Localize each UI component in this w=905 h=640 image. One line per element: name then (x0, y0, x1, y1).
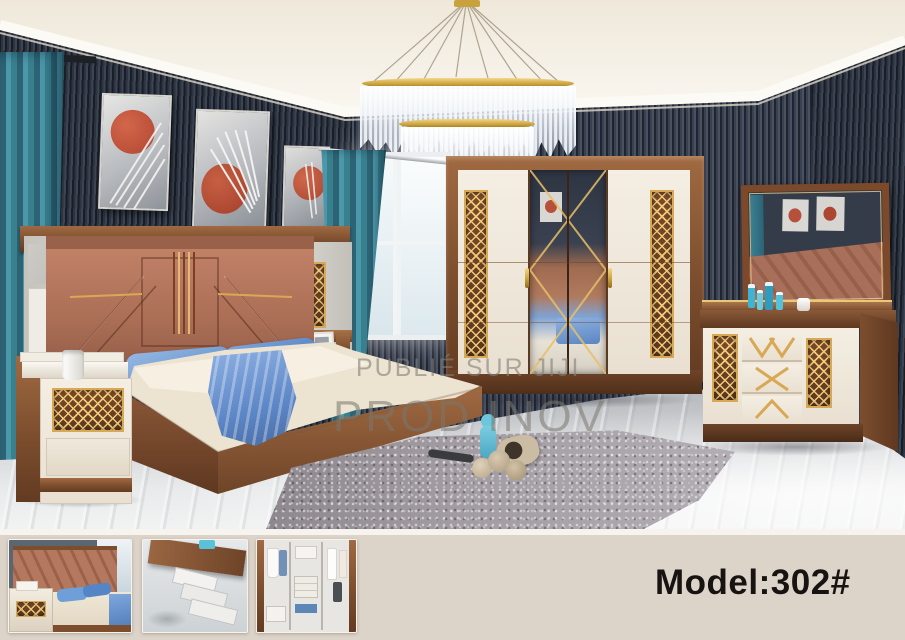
nightstand-lower-drawer (46, 438, 130, 476)
nightstand-base (40, 478, 132, 492)
wardrobe-handle-left (525, 268, 529, 288)
wardrobe-door-seam (458, 322, 690, 323)
model-label: Model:302# (655, 563, 851, 603)
thumb-divider (321, 542, 323, 630)
thumb-nightstand (9, 588, 53, 632)
wall-art-1 (98, 93, 172, 211)
thumbnail-dresser-open-drawers (142, 539, 248, 633)
nightstand-lattice-drawer (52, 388, 124, 432)
thumb-wardrobe-frame-right (349, 540, 356, 632)
flower (506, 460, 526, 480)
thumb-pillow (82, 582, 111, 598)
thumb-floor-shadow (147, 610, 187, 628)
thumb-bottles (199, 540, 215, 549)
dresser-lattice-left (712, 334, 738, 402)
wardrobe-mirror-gold-trim (530, 170, 606, 374)
art-fan-lines (100, 95, 174, 213)
thumb-bed (53, 592, 131, 632)
wardrobe-lattice-left (464, 190, 488, 358)
product-photo-card: PUBLIÉ SUR JIJI PROD INOV (0, 0, 905, 640)
dried-flowers (472, 450, 528, 484)
wardrobe-mirror-doors (530, 170, 606, 374)
wardrobe-door-right (606, 170, 690, 374)
thumbnail-bed-closeup (8, 539, 132, 633)
dresser-side-panel (860, 310, 898, 452)
watermark-line2: PROD INOV (333, 392, 607, 442)
dresser-drawer-middle (742, 364, 802, 394)
thumb-tissue-box (16, 581, 38, 591)
dresser-lattice-right (806, 338, 832, 408)
showroom-photo: PUBLIÉ SUR JIJI PROD INOV (0, 0, 905, 532)
thumb-shelf-box (295, 546, 317, 559)
thumb-divider (289, 542, 291, 630)
watermark-line1: PUBLIÉ SUR JIJI (356, 354, 581, 383)
thumbnail-wardrobe-interior (256, 539, 357, 633)
dresser-drawer-bottom (742, 396, 802, 422)
perfume-bottle (776, 292, 783, 310)
thumb-hanging-clothes (327, 548, 337, 580)
footer-strip: Model:302# (0, 535, 905, 640)
dresser (696, 178, 905, 480)
thumb-dresser-top (148, 539, 247, 577)
thumb-hanging-clothes (279, 550, 287, 576)
nightstand (16, 350, 136, 502)
thumb-inner-drawers (294, 576, 318, 598)
thumb-wardrobe-frame-left (257, 540, 264, 632)
wardrobe-door-seam (458, 262, 690, 263)
dresser-mirror (741, 183, 891, 310)
perfume-bottle (757, 290, 763, 310)
thumb-hanging-clothes (267, 548, 279, 578)
perfume-bottle (748, 284, 755, 308)
wardrobe-lattice-right (650, 190, 674, 358)
thumb-bed-base (53, 625, 131, 632)
dresser-drawer-top (742, 332, 802, 362)
white-mug (62, 350, 84, 380)
thumb-storage-basket (266, 606, 286, 622)
wall-art-2 (192, 109, 270, 232)
white-jar (797, 298, 810, 311)
art-fan-lines (194, 111, 272, 234)
thumb-nightstand-lattice (16, 601, 46, 617)
thumb-hanging-clothes-dark (333, 582, 342, 602)
perfume-bottle (765, 282, 773, 310)
thumb-hanging-clothes (339, 550, 347, 578)
window-pane (401, 157, 445, 335)
wardrobe-handle-right (608, 268, 612, 288)
thumb-folded-blue (295, 604, 317, 613)
